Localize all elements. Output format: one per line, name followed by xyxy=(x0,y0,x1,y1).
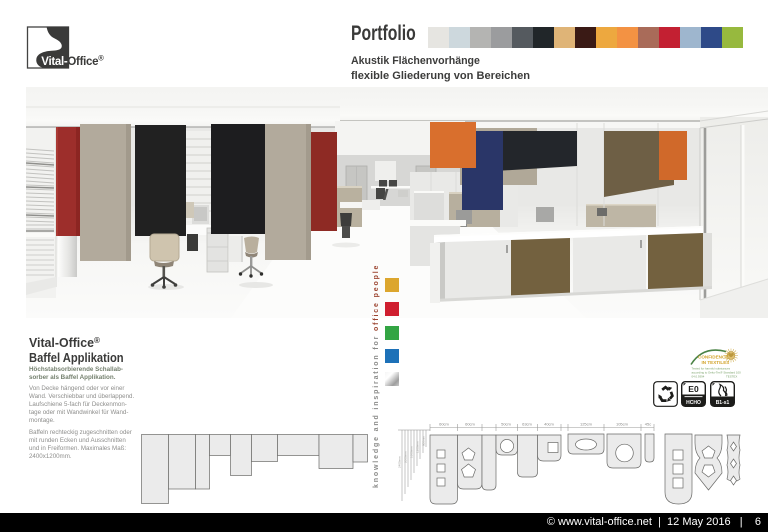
svg-text:60cm: 60cm xyxy=(439,422,449,427)
svg-text:IN TEXTILES: IN TEXTILES xyxy=(702,360,730,365)
svg-text:2000mm: 2000mm xyxy=(404,451,408,463)
svg-text:1200mm: 1200mm xyxy=(416,441,420,453)
svg-text:125cm: 125cm xyxy=(580,422,593,427)
svg-text:CONFIDENCE: CONFIDENCE xyxy=(698,355,728,360)
svg-text:1600mm: 1600mm xyxy=(410,446,414,458)
svg-text:800mm: 800mm xyxy=(422,435,426,446)
svg-text:50cm: 50cm xyxy=(501,422,511,427)
svg-text:E0: E0 xyxy=(688,384,699,394)
svg-text:04.0.9394: 04.0.9394 xyxy=(692,375,705,379)
svg-text:60cm: 60cm xyxy=(465,422,475,427)
svg-text:HCHO: HCHO xyxy=(686,400,701,406)
svg-text:2400mm: 2400mm xyxy=(398,456,402,468)
svg-text:40cm: 40cm xyxy=(544,422,554,427)
svg-text:63cm: 63cm xyxy=(522,422,532,427)
svg-text:Vital-Office®: Vital-Office® xyxy=(41,54,104,68)
svg-text:105cm: 105cm xyxy=(616,422,629,427)
svg-text:45c: 45c xyxy=(645,422,651,427)
svg-text:TESTEX: TESTEX xyxy=(726,375,737,379)
svg-text:B1-s1: B1-s1 xyxy=(716,400,730,406)
